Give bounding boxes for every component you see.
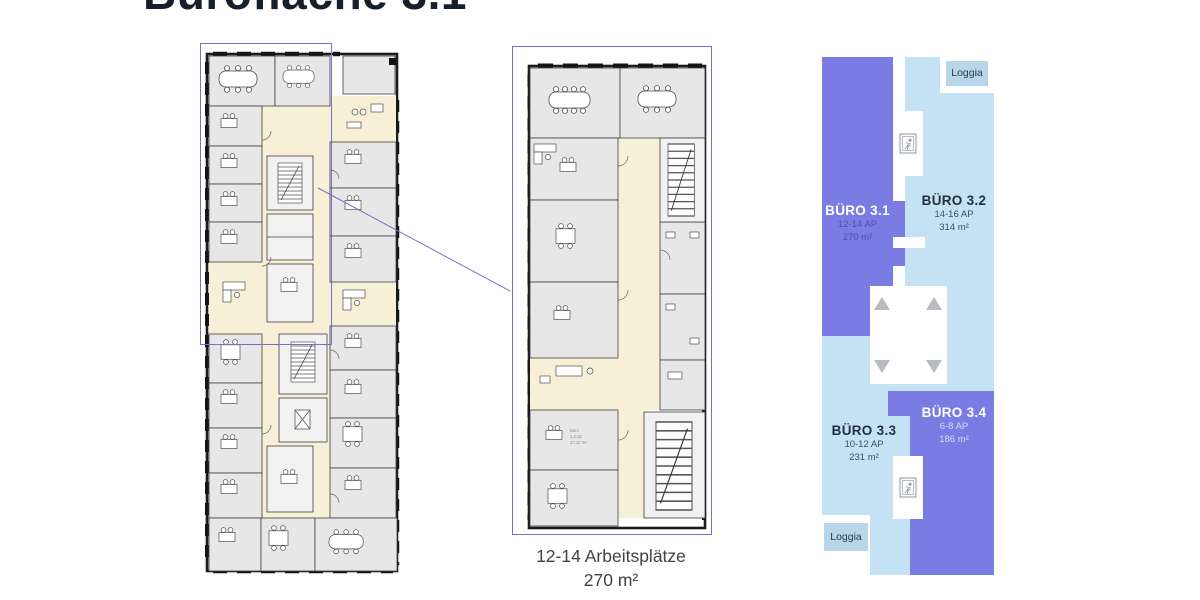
leader-line [310, 182, 516, 297]
detail-caption-area: 270 m² [500, 568, 722, 592]
detail-caption: 12-14 Arbeitsplätze 270 m² [500, 544, 722, 592]
terrace-block [343, 56, 395, 94]
loggia-label-top: Loggia [946, 61, 988, 86]
stairs-icon [668, 144, 694, 216]
unit-schematic-shapes [822, 57, 994, 575]
detail-floor-plan: Büro 1.2.15 27.12 m² [526, 60, 708, 532]
stairs-icon [291, 342, 315, 382]
stairs-icon [656, 422, 692, 510]
unit-schematic: BÜRO 3.1 12-14 AP 270 m² BÜRO 3.2 14-16 … [822, 57, 994, 575]
page: Bürofläche 3.1 [0, 0, 1200, 600]
loggia-label-bottom: Loggia [824, 523, 868, 551]
emergency-exit-icon [900, 134, 916, 153]
plan-corner-marker [389, 58, 396, 65]
svg-text:1.2.15: 1.2.15 [570, 434, 582, 439]
page-title: Bürofläche 3.1 [143, 0, 467, 21]
svg-text:Büro: Büro [570, 428, 580, 433]
elevator-icon [295, 410, 310, 429]
emergency-exit-icon [900, 478, 916, 497]
svg-text:27.12 m²: 27.12 m² [570, 440, 587, 445]
detail-caption-workplaces: 12-14 Arbeitsplätze [500, 544, 722, 568]
